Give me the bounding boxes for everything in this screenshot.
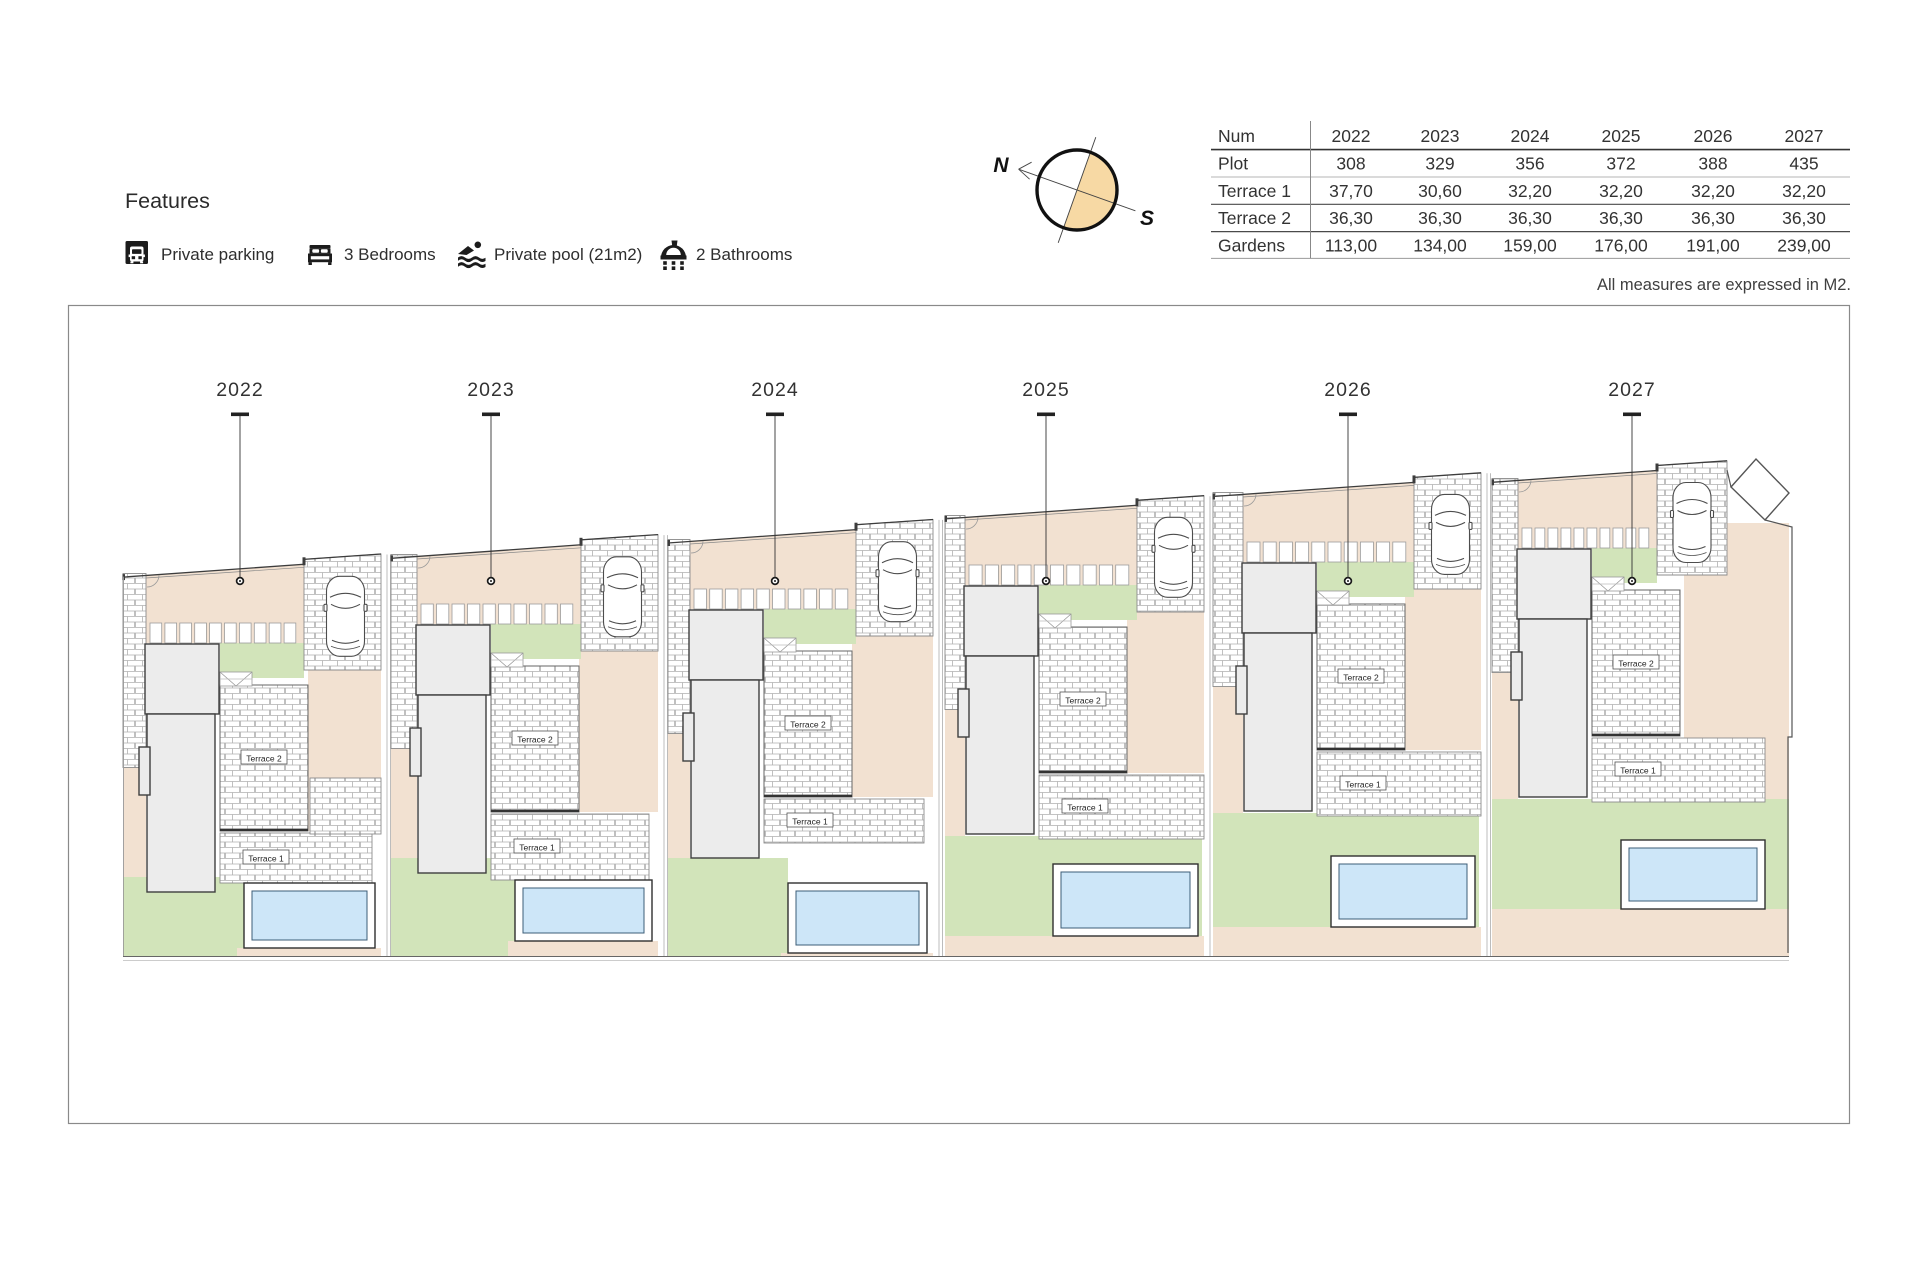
svg-text:Features: Features [125, 189, 210, 213]
svg-text:Terrace 2: Terrace 2 [517, 735, 553, 745]
svg-text:36,30: 36,30 [1599, 208, 1643, 228]
svg-text:Terrace 1: Terrace 1 [248, 854, 284, 864]
svg-text:2027: 2027 [1785, 126, 1824, 146]
svg-text:Plot: Plot [1218, 154, 1248, 174]
svg-text:2022: 2022 [216, 379, 263, 401]
svg-text:2025: 2025 [1602, 126, 1641, 146]
svg-text:Terrace 1: Terrace 1 [792, 817, 828, 827]
svg-text:Terrace 2: Terrace 2 [1218, 208, 1291, 228]
svg-text:Terrace 1: Terrace 1 [1067, 803, 1103, 813]
svg-text:2022: 2022 [1332, 126, 1371, 146]
svg-text:356: 356 [1515, 154, 1544, 174]
svg-text:30,60: 30,60 [1418, 181, 1462, 201]
svg-text:134,00: 134,00 [1413, 235, 1467, 255]
svg-text:Num: Num [1218, 126, 1255, 146]
svg-text:Terrace 2: Terrace 2 [1618, 659, 1654, 669]
svg-text:Terrace 2: Terrace 2 [1065, 696, 1101, 706]
svg-text:2024: 2024 [751, 379, 798, 401]
svg-text:Terrace 1: Terrace 1 [1218, 181, 1291, 201]
svg-text:32,20: 32,20 [1599, 181, 1643, 201]
svg-text:239,00: 239,00 [1777, 235, 1831, 255]
svg-text:32,20: 32,20 [1508, 181, 1552, 201]
svg-text:37,70: 37,70 [1329, 181, 1373, 201]
svg-text:2023: 2023 [1421, 126, 1460, 146]
svg-text:32,20: 32,20 [1691, 181, 1735, 201]
svg-text:329: 329 [1425, 154, 1454, 174]
svg-text:36,30: 36,30 [1782, 208, 1826, 228]
svg-text:2 Bathrooms: 2 Bathrooms [696, 245, 792, 264]
svg-text:36,30: 36,30 [1418, 208, 1462, 228]
svg-text:159,00: 159,00 [1503, 235, 1557, 255]
svg-text:Gardens: Gardens [1218, 235, 1285, 255]
svg-text:Terrace 1: Terrace 1 [1620, 766, 1656, 776]
svg-text:All measures are expressed in: All measures are expressed in M2. [1597, 276, 1851, 294]
svg-text:2025: 2025 [1022, 379, 1069, 401]
svg-text:36,30: 36,30 [1329, 208, 1373, 228]
svg-text:388: 388 [1698, 154, 1727, 174]
svg-text:N: N [993, 154, 1009, 177]
svg-text:2027: 2027 [1608, 379, 1655, 401]
svg-text:Terrace 2: Terrace 2 [790, 720, 826, 730]
svg-text:Terrace 1: Terrace 1 [519, 843, 555, 853]
svg-text:2026: 2026 [1324, 379, 1371, 401]
svg-text:176,00: 176,00 [1594, 235, 1648, 255]
svg-text:372: 372 [1606, 154, 1635, 174]
svg-text:113,00: 113,00 [1325, 235, 1377, 255]
svg-text:3 Bedrooms: 3 Bedrooms [344, 245, 436, 264]
svg-text:Terrace 2: Terrace 2 [1343, 673, 1379, 683]
svg-text:Terrace 1: Terrace 1 [1345, 780, 1381, 790]
svg-text:2026: 2026 [1694, 126, 1733, 146]
svg-text:Terrace 2: Terrace 2 [246, 754, 282, 764]
svg-text:Private parking: Private parking [161, 245, 274, 264]
svg-text:36,30: 36,30 [1691, 208, 1735, 228]
svg-text:308: 308 [1336, 154, 1365, 174]
svg-text:2024: 2024 [1511, 126, 1550, 146]
svg-text:191,00: 191,00 [1686, 235, 1740, 255]
svg-text:S: S [1140, 207, 1154, 230]
svg-text:32,20: 32,20 [1782, 181, 1826, 201]
svg-text:2023: 2023 [467, 379, 514, 401]
svg-text:435: 435 [1789, 154, 1818, 174]
svg-text:Private pool (21m2): Private pool (21m2) [494, 245, 642, 264]
svg-text:36,30: 36,30 [1508, 208, 1552, 228]
